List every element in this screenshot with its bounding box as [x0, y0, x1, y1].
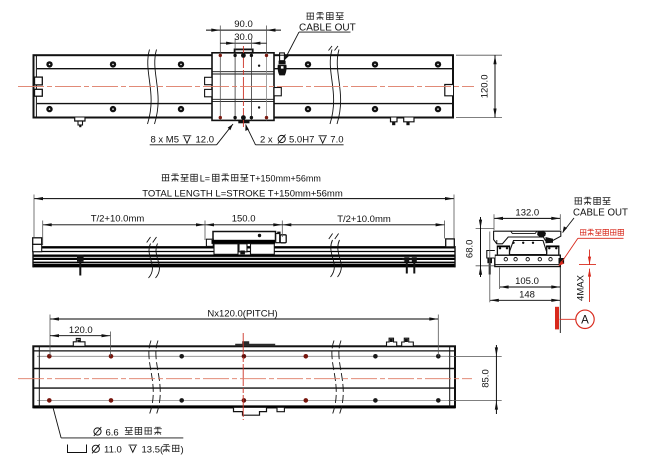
svg-text:6.6: 6.6 [106, 427, 119, 438]
svg-text:7.0: 7.0 [330, 135, 343, 146]
svg-text:5.0H7: 5.0H7 [289, 135, 314, 146]
svg-text:): ) [181, 445, 184, 456]
svg-text:132.0: 132.0 [515, 207, 539, 218]
svg-text:11.0: 11.0 [104, 445, 122, 456]
svg-text:T/2+10.0mm: T/2+10.0mm [337, 214, 391, 225]
svg-text:105.0: 105.0 [515, 276, 539, 287]
svg-text:120.0: 120.0 [480, 75, 491, 99]
svg-text:68.0: 68.0 [465, 240, 476, 258]
svg-text:L=: L= [200, 174, 210, 184]
svg-text:12.0: 12.0 [196, 135, 215, 146]
svg-text:TOTAL LENGTH L=STROKE T+150mm+: TOTAL LENGTH L=STROKE T+150mm+56mm [142, 188, 343, 199]
svg-text:CABLE OUT: CABLE OUT [573, 208, 628, 219]
svg-text:4MAX: 4MAX [575, 274, 586, 301]
svg-text:T+150mm+56mm: T+150mm+56mm [250, 174, 321, 184]
svg-text:2 x: 2 x [260, 135, 273, 146]
svg-text:30.0: 30.0 [234, 32, 253, 43]
svg-text:Nx120.0(PITCH): Nx120.0(PITCH) [207, 308, 277, 319]
svg-text:148: 148 [519, 289, 535, 300]
svg-text:150.0: 150.0 [232, 214, 256, 225]
svg-text:90.0: 90.0 [234, 19, 253, 30]
svg-text:8 x M5: 8 x M5 [151, 135, 180, 146]
svg-text:120.0: 120.0 [69, 325, 93, 336]
svg-text:A: A [581, 315, 589, 327]
svg-text:85.0: 85.0 [481, 369, 492, 388]
svg-text:T/2+10.0mm: T/2+10.0mm [91, 214, 145, 225]
svg-text:13.5(: 13.5( [142, 445, 164, 456]
